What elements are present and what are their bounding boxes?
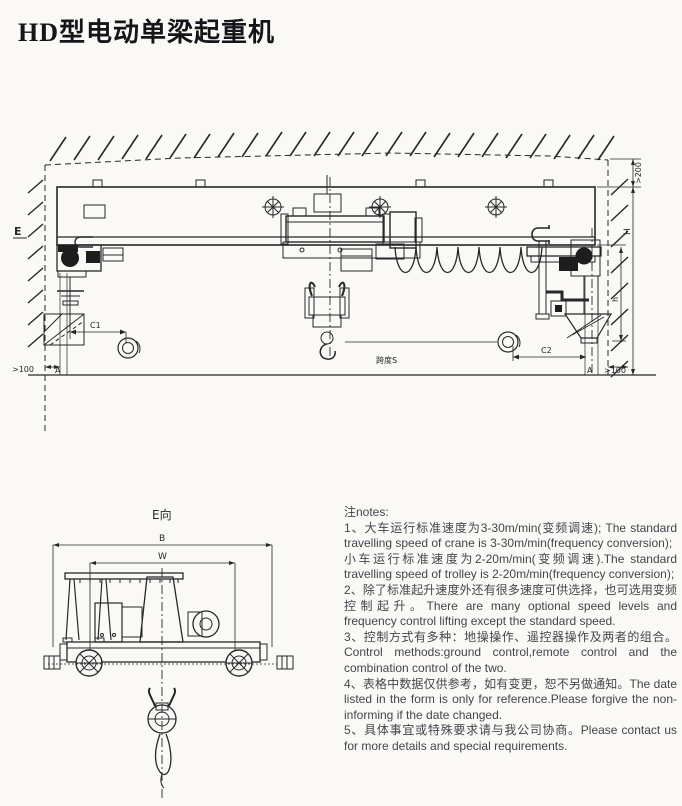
rail-right-label: A bbox=[587, 366, 593, 375]
wheel-base-label: W bbox=[158, 552, 167, 562]
crosshair-icon bbox=[485, 196, 507, 218]
note-item: 3、控制方式有多种：地操操作、遥控器操作及两者的组合。Control metho… bbox=[344, 630, 677, 677]
hook-right-limit-icon bbox=[498, 332, 520, 352]
note-item: 5、具体事宜或特殊要求请与我公司协商。Please contact us for… bbox=[344, 723, 677, 754]
note-item: 2、除了标准起升速度外还有很多速度可供选择，也可选用变频控制起升。There a… bbox=[344, 583, 677, 630]
ceiling-hatch bbox=[45, 132, 614, 165]
overall-width-label: B bbox=[159, 534, 165, 544]
festoon-cable bbox=[395, 247, 542, 273]
catalog-page: HD型电动单梁起重机 bbox=[0, 0, 682, 806]
notes-heading: 注notes: bbox=[344, 505, 677, 521]
lifting-point-symbols bbox=[262, 196, 507, 218]
rail-left-label: A bbox=[55, 366, 61, 375]
end-beam-and-wheels bbox=[44, 642, 293, 676]
note-item: 4、表格中数据仅供参考，如有变更，恕不另做通知。The date listed … bbox=[344, 677, 677, 724]
side-view-dimensions: B W bbox=[53, 534, 272, 650]
hook-approach-right-label: C2 bbox=[541, 346, 552, 355]
right-end-assembly bbox=[527, 225, 611, 375]
side-view-label: E向 bbox=[152, 507, 172, 522]
crosshair-icon bbox=[369, 196, 391, 218]
top-clearance-label: >200 bbox=[634, 162, 643, 184]
crane-side-view-drawing: E向 B W bbox=[30, 500, 320, 806]
girder bbox=[57, 175, 595, 245]
hook-left-limit-icon bbox=[118, 338, 140, 358]
view-direction-label: E bbox=[14, 225, 22, 238]
headroom-label: h bbox=[611, 297, 620, 302]
left-end-carriage bbox=[44, 237, 123, 345]
wheel-icon bbox=[226, 650, 252, 676]
left-clearance-label: >100 bbox=[12, 365, 34, 374]
crane-height-label: H bbox=[623, 228, 633, 235]
notes-section: 注notes: 1、大车运行标准速度为3-30m/min(变频调速); The … bbox=[344, 505, 677, 755]
right-clearance-label: >100 bbox=[604, 366, 626, 375]
left-wall-hatch bbox=[28, 165, 45, 431]
wheel-icon bbox=[76, 650, 102, 676]
span-label: 跨度S bbox=[376, 355, 397, 365]
hoist-trolley bbox=[281, 177, 422, 357]
hook-approach-left-label: C1 bbox=[90, 321, 101, 330]
note-item: 1、大车运行标准速度为3-30m/min(变频调速); The standard… bbox=[344, 521, 677, 552]
note-item: 小车运行标准速度为2-20m/min(变频调速).The standard tr… bbox=[344, 552, 677, 583]
right-wall-hatch bbox=[608, 160, 628, 377]
trolley-frame bbox=[63, 568, 219, 800]
page-title: HD型电动单梁起重机 bbox=[18, 12, 275, 49]
hook-block bbox=[305, 283, 497, 359]
crane-front-view-drawing: E >100 A C1 跨度S bbox=[0, 95, 682, 440]
